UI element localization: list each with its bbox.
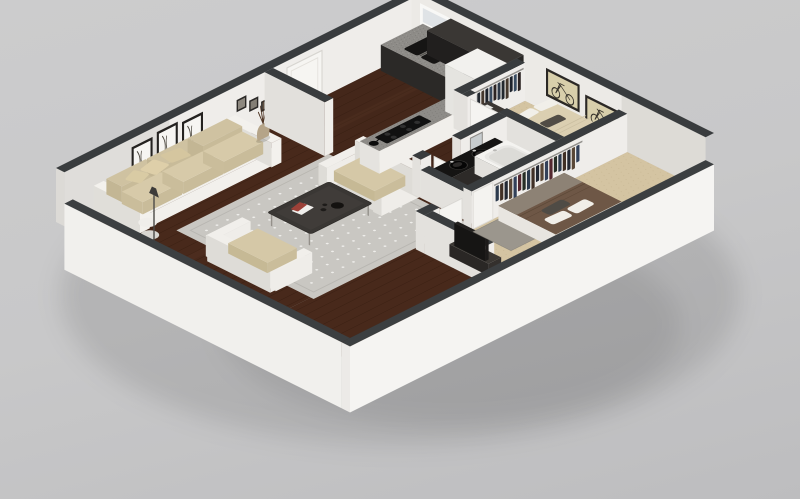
floor-plan-stage: 3D isometric cutaway floor plan renderin… [0,0,800,499]
floor-plan-3d-render [0,0,800,499]
